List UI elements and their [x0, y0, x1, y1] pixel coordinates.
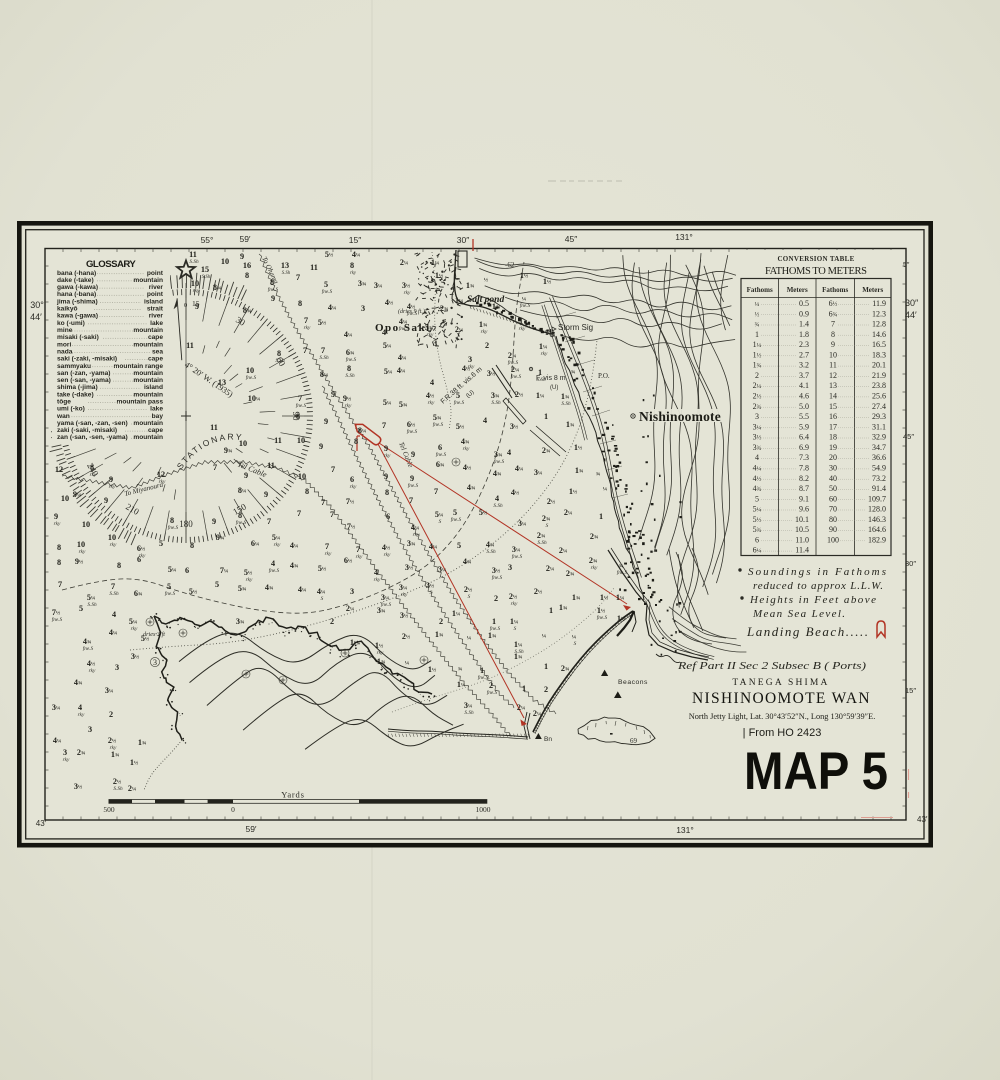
svg-text:Meters: Meters — [787, 286, 808, 294]
svg-text:9: 9 — [831, 340, 835, 349]
svg-text:2½: 2½ — [753, 392, 762, 401]
svg-text:15″: 15″ — [905, 686, 916, 695]
svg-text:fne.S: fne.S — [399, 325, 410, 332]
svg-text:7: 7 — [267, 517, 271, 526]
svg-text:1½: 1½ — [753, 350, 762, 359]
svg-text:S.Sh: S.Sh — [282, 271, 291, 276]
svg-text:7: 7 — [111, 582, 115, 591]
svg-text:8: 8 — [296, 412, 300, 421]
svg-text:rky: rky — [591, 565, 598, 571]
svg-text:100: 100 — [827, 535, 839, 544]
svg-text:70: 70 — [829, 505, 837, 514]
svg-text:cape: cape — [148, 334, 163, 341]
svg-text:1: 1 — [544, 412, 548, 421]
svg-text:point: point — [147, 291, 164, 298]
svg-text:5¾: 5¾ — [753, 525, 762, 534]
svg-text:6: 6 — [386, 512, 390, 521]
svg-text:7: 7 — [409, 496, 413, 505]
svg-text:bay: bay — [152, 413, 164, 420]
svg-text:S.Sh: S.Sh — [87, 602, 97, 608]
svg-text:30: 30 — [829, 464, 837, 473]
svg-text:15″: 15″ — [349, 235, 361, 245]
svg-text:4¼: 4¼ — [753, 464, 762, 473]
svg-text:4: 4 — [495, 494, 499, 503]
svg-text:4: 4 — [430, 378, 434, 387]
svg-text:rky: rky — [374, 577, 381, 583]
svg-text:fne.S: fne.S — [346, 356, 357, 363]
svg-text:11: 11 — [210, 423, 218, 432]
svg-text:S: S — [430, 590, 433, 596]
svg-text:8: 8 — [350, 261, 354, 270]
svg-text:| From HO 2423: | From HO 2423 — [743, 727, 822, 739]
svg-text:0: 0 — [184, 302, 187, 309]
svg-text:5: 5 — [453, 508, 457, 517]
svg-text:131°: 131° — [675, 232, 693, 242]
svg-text:rky: rky — [193, 288, 200, 294]
svg-text:nada: nada — [57, 349, 73, 356]
svg-text:7: 7 — [321, 498, 325, 507]
svg-text:1: 1 — [492, 617, 496, 626]
svg-text:P.O.: P.O. — [598, 372, 610, 380]
svg-text:8: 8 — [298, 299, 302, 308]
svg-text:16: 16 — [829, 412, 837, 421]
svg-text:18.3: 18.3 — [872, 350, 886, 359]
svg-text:1: 1 — [522, 684, 526, 693]
svg-text:9: 9 — [324, 417, 328, 426]
svg-text:19: 19 — [829, 443, 837, 452]
svg-text:3: 3 — [361, 304, 365, 313]
svg-text:2: 2 — [494, 594, 498, 603]
svg-text:3¼: 3¼ — [753, 422, 762, 431]
svg-text:S.Sh: S.Sh — [189, 259, 199, 265]
svg-text:fne.S: fne.S — [269, 567, 280, 574]
svg-text:36.6: 36.6 — [872, 453, 886, 462]
svg-text:1¾: 1¾ — [753, 361, 762, 370]
svg-text:11: 11 — [186, 341, 194, 350]
svg-text:14.6: 14.6 — [872, 330, 886, 339]
svg-text:4: 4 — [271, 559, 275, 568]
svg-text:fne.S: fne.S — [492, 574, 503, 581]
svg-text:9: 9 — [212, 517, 216, 526]
svg-text:7: 7 — [831, 320, 835, 329]
svg-text:tōge: tōge — [57, 399, 71, 406]
svg-text:7: 7 — [213, 463, 217, 472]
svg-text:2: 2 — [489, 681, 493, 690]
svg-text:34.7: 34.7 — [872, 443, 886, 452]
svg-text:rky: rky — [246, 577, 253, 583]
svg-text:¾: ¾ — [619, 563, 623, 570]
svg-text:1.8: 1.8 — [799, 330, 809, 339]
svg-text:S.Sh: S.Sh — [493, 503, 503, 509]
svg-text:2¾: 2¾ — [753, 402, 762, 411]
svg-text:8: 8 — [57, 558, 61, 567]
svg-text:10: 10 — [239, 439, 247, 448]
svg-text:10: 10 — [221, 257, 229, 266]
svg-text:fne.S: fne.S — [617, 569, 628, 576]
svg-text:9: 9 — [195, 302, 199, 311]
svg-text:4: 4 — [755, 453, 759, 462]
svg-text:3: 3 — [755, 412, 759, 421]
svg-text:S.Sh: S.Sh — [486, 549, 496, 555]
svg-text:25.6: 25.6 — [872, 392, 886, 401]
svg-text:fne.S: fne.S — [478, 674, 489, 681]
svg-text:zan (-san, -sen, -yama): zan (-san, -sen, -yama) — [57, 434, 128, 441]
svg-text:9: 9 — [319, 442, 323, 451]
svg-text:S: S — [439, 519, 442, 525]
svg-text:take (-dake): take (-dake) — [57, 391, 94, 398]
svg-text:5: 5 — [457, 541, 461, 550]
svg-text:3.7: 3.7 — [799, 371, 809, 380]
svg-text:sen (-san, -yama): sen (-san, -yama) — [57, 377, 111, 384]
svg-text:7: 7 — [58, 580, 62, 589]
svg-text:109.7: 109.7 — [868, 494, 886, 503]
svg-text:5.9: 5.9 — [799, 422, 809, 431]
svg-text:6.4: 6.4 — [799, 433, 809, 442]
svg-text:½: ½ — [755, 311, 760, 318]
svg-text:rky: rky — [78, 712, 85, 718]
svg-text:S.Sh: S.Sh — [491, 400, 501, 406]
svg-text:9: 9 — [384, 472, 388, 481]
svg-text:TANEGA SHIMA: TANEGA SHIMA — [732, 678, 829, 688]
svg-text:fne.S: fne.S — [322, 288, 333, 295]
svg-text:30°: 30° — [30, 300, 44, 310]
svg-text:5.5: 5.5 — [799, 412, 809, 421]
svg-text:1: 1 — [519, 317, 523, 326]
svg-text:1: 1 — [755, 330, 759, 339]
svg-text:Beacons: Beacons — [618, 679, 648, 686]
svg-text:fne.S: fne.S — [52, 616, 63, 623]
svg-text:8: 8 — [190, 541, 194, 550]
svg-text:S.Sh: S.Sh — [202, 275, 211, 280]
svg-text:Fathoms: Fathoms — [822, 286, 848, 294]
svg-text:11: 11 — [267, 461, 275, 470]
svg-text:S: S — [514, 626, 517, 632]
svg-text:3: 3 — [115, 663, 119, 672]
svg-text:30″: 30″ — [457, 235, 469, 245]
svg-text:9: 9 — [109, 475, 113, 484]
svg-text:6: 6 — [438, 443, 442, 452]
svg-text:fne.S: fne.S — [436, 451, 447, 458]
svg-text:8: 8 — [270, 278, 274, 287]
svg-text:rky: rky — [541, 351, 548, 357]
svg-text:5½: 5½ — [753, 515, 762, 524]
svg-text:10: 10 — [829, 350, 837, 359]
svg-text:8: 8 — [245, 271, 249, 280]
svg-text:strait: strait — [147, 306, 164, 313]
svg-text:fne.S: fne.S — [268, 286, 279, 293]
svg-text:45″: 45″ — [903, 432, 914, 441]
svg-text:7.8: 7.8 — [799, 464, 809, 473]
svg-text:¼: ¼ — [522, 297, 526, 303]
svg-text:91.4: 91.4 — [872, 484, 886, 493]
svg-text:mountain: mountain — [133, 420, 163, 427]
svg-text:S: S — [321, 596, 324, 602]
svg-text:9: 9 — [410, 474, 414, 483]
svg-text:3: 3 — [433, 339, 437, 348]
svg-text:4: 4 — [382, 328, 386, 337]
svg-text:18: 18 — [829, 433, 837, 442]
svg-text:32.9: 32.9 — [872, 433, 886, 442]
svg-text:1: 1 — [480, 666, 484, 675]
svg-text:fne.S: fne.S — [433, 421, 444, 428]
svg-text:reduced to approx L.L.W.: reduced to approx L.L.W. — [753, 580, 883, 592]
svg-text:½: ½ — [484, 277, 488, 284]
svg-text:Bn: Bn — [544, 736, 552, 743]
svg-text:kawa (-gawa): kawa (-gawa) — [57, 313, 98, 320]
svg-text:2.3: 2.3 — [799, 340, 809, 349]
svg-text:4¾: 4¾ — [753, 484, 762, 493]
svg-text:7: 7 — [325, 542, 329, 551]
svg-text:sea: sea — [152, 349, 163, 356]
svg-text:mori: mori — [57, 341, 71, 348]
svg-text:6: 6 — [137, 555, 141, 564]
svg-text:rky: rky — [304, 325, 311, 331]
svg-text:¼: ¼ — [542, 634, 546, 640]
svg-text:11: 11 — [829, 361, 837, 370]
svg-text:21.9: 21.9 — [872, 371, 886, 380]
svg-text:13: 13 — [281, 261, 289, 270]
svg-text:10: 10 — [108, 533, 116, 542]
svg-text:500: 500 — [103, 805, 115, 814]
svg-text:fne.S: fne.S — [451, 516, 462, 523]
svg-text:¾: ¾ — [596, 471, 600, 478]
svg-text:kaikyō: kaikyō — [57, 306, 78, 313]
svg-text:5: 5 — [79, 604, 83, 613]
svg-text:1¼: 1¼ — [753, 340, 762, 349]
svg-text:saki (-zaki, -misaki): saki (-zaki, -misaki) — [57, 356, 117, 363]
svg-text:lake: lake — [150, 406, 163, 413]
svg-text:North Jetty Light, Lat. 30°43: North Jetty Light, Lat. 30°43′52″N., Lon… — [689, 712, 876, 721]
svg-text:rky: rky — [404, 290, 411, 296]
svg-text:GLOSSARY: GLOSSARY — [86, 259, 136, 270]
svg-text:misaki (-saki): misaki (-saki) — [57, 334, 99, 341]
svg-text:fne.S: fne.S — [83, 645, 94, 652]
svg-text:54.9: 54.9 — [872, 464, 886, 473]
svg-text:sammyaku: sammyaku — [57, 363, 91, 370]
svg-text:7: 7 — [304, 316, 308, 325]
svg-text:rky: rky — [159, 479, 166, 485]
svg-text:mountain: mountain — [133, 341, 163, 348]
svg-text:3.2: 3.2 — [799, 361, 809, 370]
svg-text:9: 9 — [54, 512, 58, 521]
svg-text:9: 9 — [271, 294, 275, 303]
svg-text:point: point — [147, 270, 164, 277]
svg-text:5: 5 — [159, 539, 163, 548]
svg-text:29.3: 29.3 — [872, 412, 886, 421]
svg-text:5: 5 — [324, 280, 328, 289]
svg-text:jima (-shima): jima (-shima) — [56, 298, 98, 305]
svg-text:fne.S: fne.S — [168, 524, 179, 531]
svg-text:6.9: 6.9 — [799, 443, 809, 452]
svg-text:12: 12 — [55, 465, 63, 474]
svg-text:5″: 5″ — [903, 262, 910, 269]
svg-text:fne.S: fne.S — [381, 601, 392, 608]
svg-text:4.1: 4.1 — [799, 381, 809, 390]
svg-text:10: 10 — [297, 436, 305, 445]
svg-text:0.5: 0.5 — [799, 299, 809, 308]
svg-text:43′: 43′ — [917, 815, 928, 824]
svg-text:¼: ¼ — [572, 635, 576, 641]
svg-text:zaki (-saki, -misaki): zaki (-saki, -misaki) — [57, 427, 117, 434]
svg-text:rky: rky — [413, 532, 420, 538]
svg-text:10: 10 — [77, 540, 85, 549]
svg-text:san (-zan, -yama): san (-zan, -yama) — [57, 370, 111, 377]
svg-text:2: 2 — [330, 617, 334, 626]
svg-text:mountain: mountain — [133, 277, 163, 284]
svg-text:rky: rky — [110, 542, 117, 548]
svg-text:¼: ¼ — [755, 301, 760, 308]
svg-text:8: 8 — [117, 561, 121, 570]
svg-text:hana (-bana): hana (-bana) — [57, 291, 96, 298]
svg-text:7: 7 — [297, 509, 301, 518]
svg-text:7: 7 — [321, 346, 325, 355]
svg-text:bana (-hana): bana (-hana) — [57, 270, 96, 277]
svg-text:fne.S: fne.S — [511, 373, 522, 380]
svg-text:4: 4 — [483, 416, 487, 425]
svg-text:1.4: 1.4 — [799, 320, 809, 329]
svg-text:rky: rky — [345, 403, 352, 409]
svg-text:¼: ¼ — [405, 661, 409, 667]
svg-text:2: 2 — [544, 685, 548, 694]
svg-text:7: 7 — [330, 510, 334, 519]
svg-text:mountain: mountain — [133, 327, 163, 334]
svg-text:2: 2 — [439, 617, 443, 626]
svg-text:17: 17 — [829, 422, 837, 431]
svg-text:rky: rky — [350, 271, 357, 276]
svg-text:4: 4 — [78, 703, 82, 712]
svg-text:8: 8 — [277, 349, 281, 358]
svg-text:¾: ¾ — [571, 369, 575, 376]
svg-text:12.3: 12.3 — [872, 309, 886, 318]
svg-text:80: 80 — [829, 515, 837, 524]
svg-text:9: 9 — [331, 390, 335, 399]
svg-text:9.6: 9.6 — [799, 505, 809, 514]
svg-text:13: 13 — [829, 381, 837, 390]
svg-text:cape: cape — [148, 356, 163, 363]
svg-text:11.4: 11.4 — [795, 546, 809, 555]
svg-text:S.Sh: S.Sh — [561, 401, 571, 407]
svg-text:146.3: 146.3 — [868, 515, 886, 524]
svg-text:river: river — [149, 313, 164, 320]
svg-text:rky: rky — [54, 521, 61, 527]
svg-text:9: 9 — [384, 444, 388, 453]
svg-text:30″: 30″ — [905, 559, 916, 568]
svg-text:12.8: 12.8 — [872, 320, 886, 329]
svg-text:15: 15 — [829, 402, 837, 411]
svg-text:fne.S: fne.S — [512, 553, 523, 560]
svg-text:ko (-umi): ko (-umi) — [57, 320, 85, 327]
svg-text:5¼: 5¼ — [753, 505, 762, 514]
svg-text:6: 6 — [350, 475, 354, 484]
svg-text:4.6: 4.6 — [799, 392, 809, 401]
svg-text:river: river — [149, 284, 164, 291]
svg-text:8: 8 — [90, 463, 94, 472]
svg-text:7: 7 — [382, 421, 386, 430]
svg-text:31.1: 31.1 — [872, 422, 886, 431]
svg-text:3½: 3½ — [753, 433, 762, 442]
svg-text:7.3: 7.3 — [799, 453, 809, 462]
svg-text:4: 4 — [112, 610, 116, 619]
svg-text:rky: rky — [109, 484, 116, 490]
svg-text:20.1: 20.1 — [872, 361, 886, 370]
svg-text:fne.S: fne.S — [246, 374, 257, 381]
svg-text:3: 3 — [508, 563, 512, 572]
svg-text:S.Sh: S.Sh — [536, 377, 546, 383]
svg-text:Landing Beach.....: Landing Beach..... — [746, 624, 868, 639]
svg-text:mountain range: mountain range — [114, 363, 164, 370]
svg-text:fne.S: fne.S — [487, 689, 498, 696]
svg-text:rky: rky — [384, 453, 391, 459]
svg-text:fne.S: fne.S — [408, 482, 419, 489]
svg-text:NISHINOOMOTE WAN: NISHINOOMOTE WAN — [692, 690, 872, 707]
svg-text:Storm Sig: Storm Sig — [558, 323, 593, 332]
svg-text:1: 1 — [599, 512, 603, 521]
svg-text:rky: rky — [131, 626, 138, 632]
svg-text:rky: rky — [519, 326, 526, 332]
svg-text:¾: ¾ — [755, 322, 760, 329]
svg-text:fne.S: fne.S — [520, 302, 531, 309]
svg-text:8: 8 — [831, 330, 835, 339]
svg-text:6½: 6½ — [829, 299, 838, 308]
svg-text:44′: 44′ — [30, 312, 42, 322]
svg-text:Meters: Meters — [862, 286, 883, 294]
svg-text:7: 7 — [331, 465, 335, 474]
svg-text:128.0: 128.0 — [868, 505, 886, 514]
svg-text:14: 14 — [829, 392, 837, 401]
svg-text:12: 12 — [157, 470, 165, 479]
svg-text:(U): (U) — [550, 385, 558, 391]
svg-text:10: 10 — [61, 494, 69, 503]
svg-text:Heights in Feet above: Heights in Feet above — [749, 594, 876, 606]
svg-text:dake (-take): dake (-take) — [57, 277, 94, 284]
svg-text:40: 40 — [829, 474, 837, 483]
svg-text:45″: 45″ — [565, 234, 577, 244]
svg-text:rky: rky — [350, 484, 357, 490]
svg-text:¼: ¼ — [467, 636, 471, 642]
svg-text:8: 8 — [305, 487, 309, 496]
svg-text:10.5: 10.5 — [795, 525, 809, 534]
svg-text:9: 9 — [104, 496, 108, 505]
svg-text:¼: ¼ — [603, 487, 607, 493]
svg-text:11.9: 11.9 — [872, 299, 886, 308]
svg-text:20: 20 — [829, 453, 837, 462]
svg-text:9: 9 — [244, 471, 248, 480]
svg-text:S.Sh: S.Sh — [113, 786, 123, 792]
svg-text:island: island — [144, 384, 163, 391]
svg-text:mountain pass: mountain pass — [116, 399, 163, 406]
svg-text:island: island — [144, 298, 163, 305]
svg-text:rky: rky — [274, 542, 281, 548]
svg-text:4: 4 — [374, 568, 378, 577]
svg-text:11: 11 — [189, 250, 197, 259]
svg-text:90: 90 — [829, 525, 837, 534]
svg-text:Salt pond: Salt pond — [467, 295, 504, 305]
svg-text:7: 7 — [298, 394, 302, 403]
svg-text:6: 6 — [755, 535, 759, 544]
svg-text:15: 15 — [201, 265, 209, 274]
svg-text:9.1: 9.1 — [799, 494, 809, 503]
svg-text:rky: rky — [511, 601, 518, 607]
svg-text:13: 13 — [218, 378, 226, 387]
svg-text:2.7: 2.7 — [799, 350, 809, 359]
svg-text:Nishinoomote: Nishinoomote — [639, 409, 721, 424]
svg-text:59′: 59′ — [245, 824, 256, 834]
svg-text:3: 3 — [63, 748, 67, 757]
svg-text:fne.S: fne.S — [494, 458, 505, 465]
svg-text:73.2: 73.2 — [872, 474, 886, 483]
svg-text:5.0: 5.0 — [799, 402, 809, 411]
svg-text:S.Sh: S.Sh — [319, 355, 329, 361]
